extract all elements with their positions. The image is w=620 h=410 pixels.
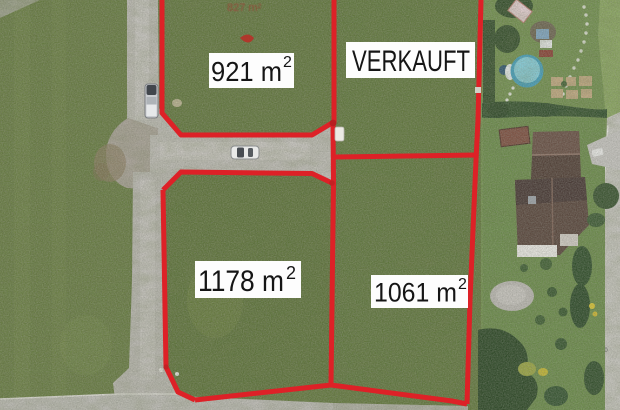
svg-text:827 m²: 827 m² bbox=[227, 2, 262, 14]
svg-text:921 m: 921 m bbox=[211, 56, 282, 87]
svg-text:1061 m: 1061 m bbox=[374, 278, 457, 308]
svg-text:2: 2 bbox=[286, 263, 296, 283]
svg-text:2: 2 bbox=[458, 276, 467, 293]
svg-text:2: 2 bbox=[283, 54, 292, 71]
svg-text:VERKAUFT: VERKAUFT bbox=[352, 45, 470, 78]
svg-text:1178 m: 1178 m bbox=[198, 265, 284, 298]
